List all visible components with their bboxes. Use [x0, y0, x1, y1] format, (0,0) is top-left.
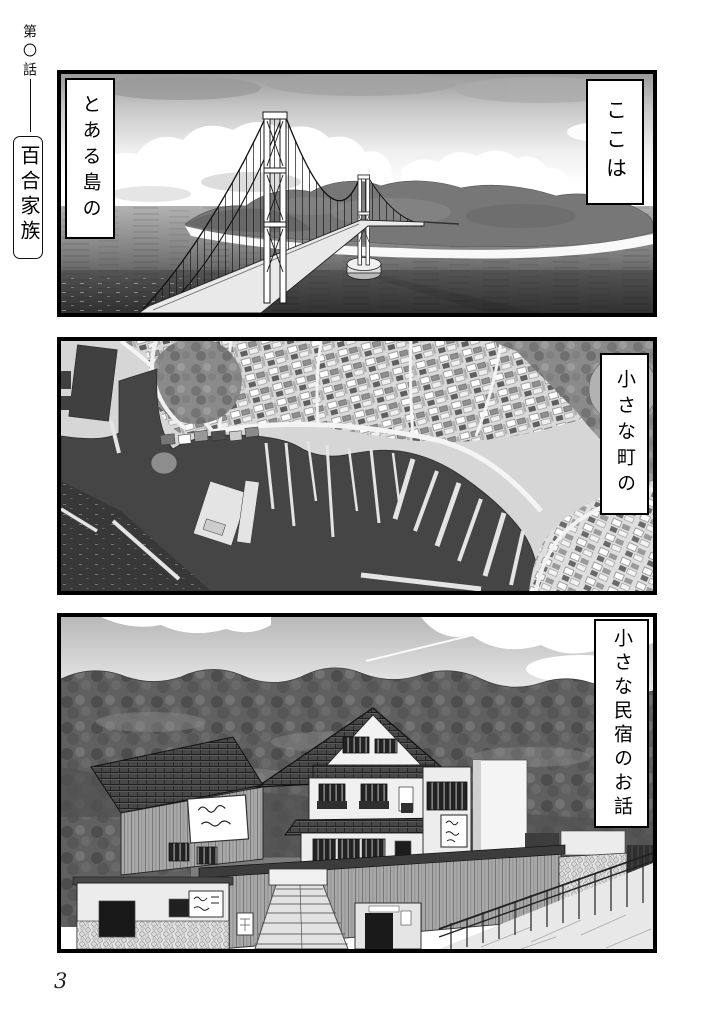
- page-number: 3: [54, 969, 67, 993]
- caption-chiisana-machi: 小さな町の: [600, 353, 649, 515]
- panel-3-minshuku-inn: 小さな民宿のお話: [57, 613, 657, 953]
- outbuilding-sign: [189, 891, 223, 917]
- caption-chiisana-minshuku-text: 小さな民宿のお話: [612, 628, 631, 820]
- park-trees: [150, 341, 242, 424]
- panel-2-harbor-town: 小さな町の: [57, 337, 657, 595]
- annex-signboard: [441, 815, 467, 847]
- caption-kokowa-text: ここは: [605, 99, 626, 186]
- caption-toaru-shima: とある島の: [65, 78, 115, 239]
- panel-1-island-bridge: ここは とある島の: [57, 70, 657, 317]
- outbuilding: [73, 877, 253, 949]
- dock-basin: [69, 345, 117, 421]
- islet: [151, 452, 177, 474]
- panel1-art-bridge-sea: [61, 74, 653, 313]
- panel2-art-harbor-map: [61, 341, 653, 591]
- series-title: 百合家族: [18, 145, 38, 245]
- caption-chiisana-machi-text: 小さな町の: [615, 369, 634, 499]
- caption-toaru-shima-text: とある島の: [81, 94, 100, 224]
- series-title-box: 百合家族: [13, 136, 43, 259]
- manga-page: { "page": { "episode_label": "第〇話", "ser…: [0, 0, 720, 1024]
- gate-wall: [355, 903, 421, 949]
- caption-chiisana-minshuku: 小さな民宿のお話: [594, 619, 649, 828]
- inn-signboard: [188, 795, 249, 843]
- panel3-art-inn: [61, 617, 653, 949]
- right-annex: [423, 767, 471, 857]
- caption-kokowa: ここは: [586, 79, 644, 205]
- episode-label: 第〇話: [21, 24, 35, 81]
- title-divider-line: [30, 79, 31, 132]
